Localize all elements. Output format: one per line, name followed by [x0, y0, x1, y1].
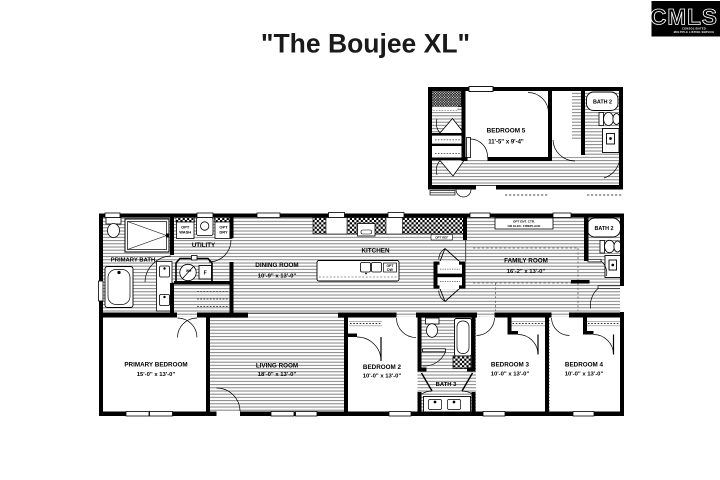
- svg-text:DRY: DRY: [219, 230, 228, 235]
- svg-text:UTILITY: UTILITY: [192, 242, 216, 249]
- svg-text:BEDROOM 4: BEDROOM 4: [565, 362, 604, 369]
- svg-text:10'-0" x 13'-0": 10'-0" x 13'-0": [565, 372, 604, 378]
- svg-text:BEDROOM 2: BEDROOM 2: [363, 364, 402, 371]
- svg-text:BEDROOM 3: BEDROOM 3: [491, 362, 530, 369]
- svg-text:BEDROOM 5: BEDROOM 5: [487, 128, 526, 135]
- svg-text:BATH 3: BATH 3: [436, 382, 458, 388]
- svg-text:WH: WH: [186, 269, 192, 273]
- svg-text:BATH 2: BATH 2: [593, 100, 612, 106]
- svg-text:10'-0" x 13'-0": 10'-0" x 13'-0": [491, 372, 530, 378]
- svg-text:BATH 2: BATH 2: [594, 226, 613, 232]
- svg-text:DW: DW: [387, 268, 393, 272]
- svg-text:PRIMARY BEDROOM: PRIMARY BEDROOM: [124, 362, 187, 369]
- svg-text:16'-2" x 13'-0": 16'-2" x 13'-0": [507, 269, 546, 275]
- svg-text:18'-0" x 13'-0": 18'-0" x 13'-0": [258, 372, 297, 378]
- svg-text:OR ELEC. FIREPLACE: OR ELEC. FIREPLACE: [507, 224, 540, 228]
- svg-text:CMLS: CMLS: [650, 5, 718, 30]
- svg-text:LIVING ROOM: LIVING ROOM: [256, 363, 298, 370]
- svg-text:10'-0" x 13'-0": 10'-0" x 13'-0": [363, 374, 402, 380]
- svg-text:FAMILY ROOM: FAMILY ROOM: [504, 258, 548, 265]
- svg-text:"The Boujee XL": "The Boujee XL": [261, 29, 470, 59]
- svg-text:15'-0" x 13'-0": 15'-0" x 13'-0": [137, 372, 176, 378]
- svg-text:WASH: WASH: [179, 230, 191, 235]
- svg-text:F: F: [204, 271, 207, 277]
- svg-text:OPT REF: OPT REF: [435, 236, 448, 240]
- svg-text:DINING ROOM: DINING ROOM: [255, 262, 298, 269]
- svg-text:11'-5" x 9'-4": 11'-5" x 9'-4": [488, 140, 524, 146]
- svg-text:KITCHEN: KITCHEN: [362, 248, 390, 255]
- svg-text:MULTIPLE LISTING SERVICE: MULTIPLE LISTING SERVICE: [674, 30, 715, 34]
- svg-text:10'-9" x 13'-0": 10'-9" x 13'-0": [258, 274, 297, 280]
- svg-text:PRIMARY BATH: PRIMARY BATH: [111, 258, 155, 264]
